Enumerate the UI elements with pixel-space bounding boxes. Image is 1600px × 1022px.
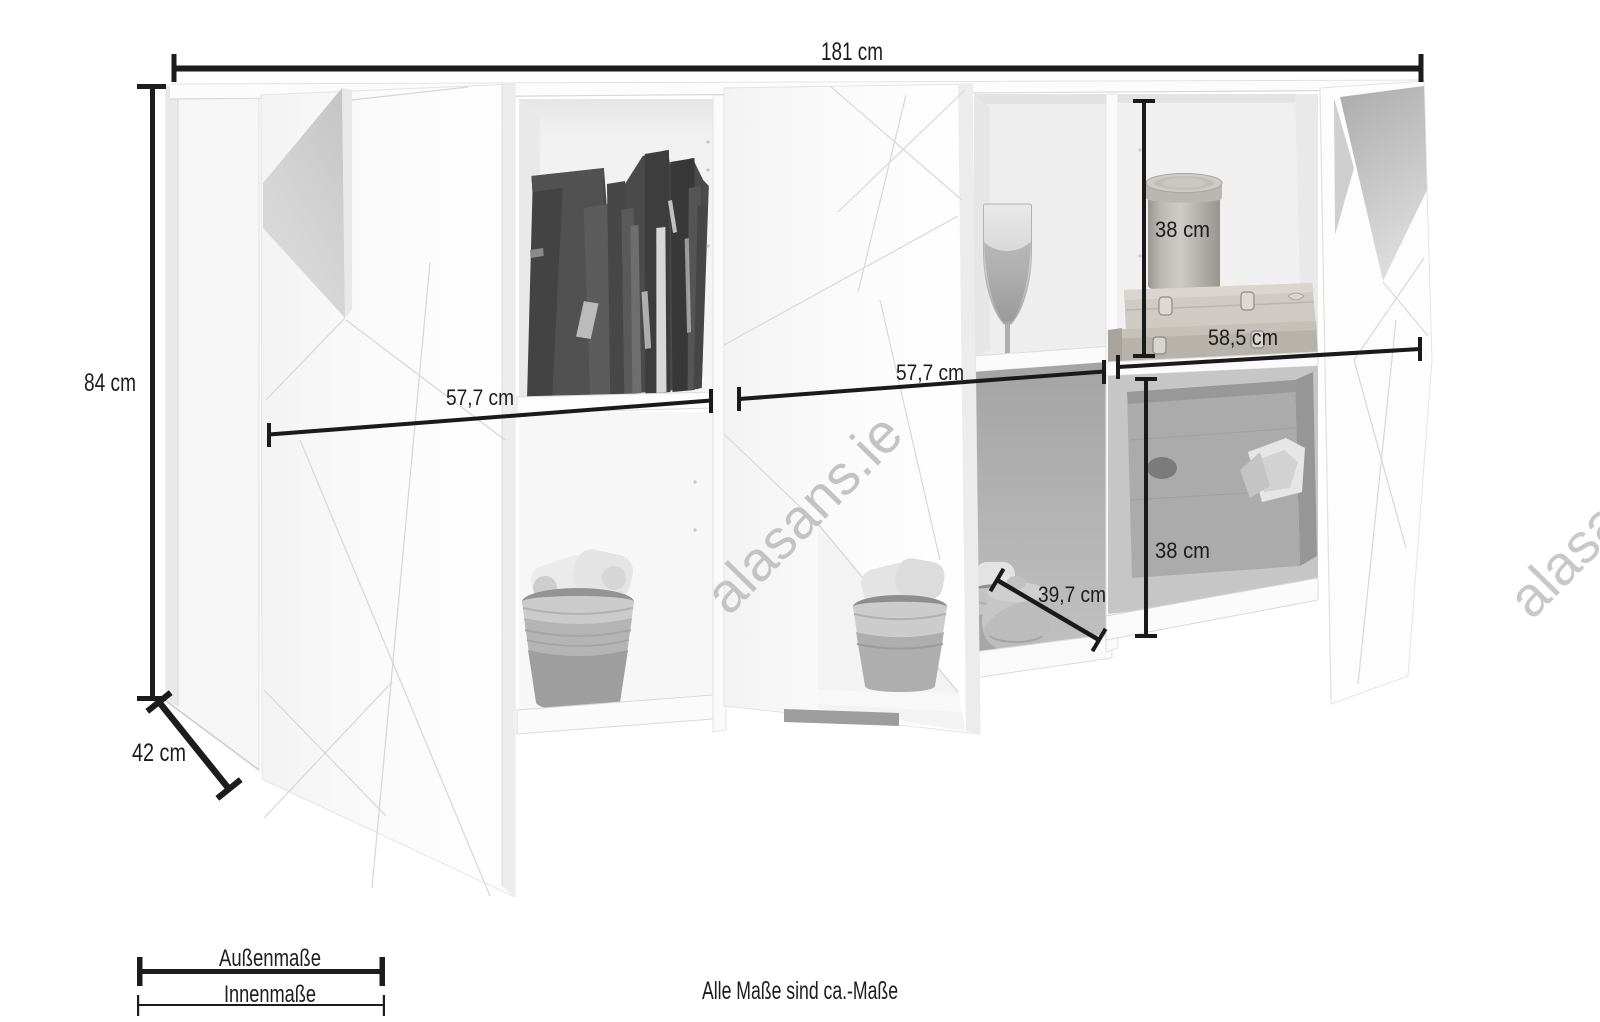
svg-text:57,7 cm: 57,7 cm xyxy=(896,360,964,385)
svg-text:Außenmaße: Außenmaße xyxy=(219,945,321,972)
svg-text:38 cm: 38 cm xyxy=(1155,538,1210,563)
svg-text:39,7 cm: 39,7 cm xyxy=(1038,582,1106,607)
svg-text:42 cm: 42 cm xyxy=(132,739,186,767)
svg-text:38 cm: 38 cm xyxy=(1155,217,1210,242)
svg-text:84 cm: 84 cm xyxy=(84,369,136,397)
svg-text:181 cm: 181 cm xyxy=(821,38,883,66)
svg-text:58,5 cm: 58,5 cm xyxy=(1208,325,1278,350)
svg-text:Innenmaße: Innenmaße xyxy=(224,981,316,1008)
svg-text:57,7 cm: 57,7 cm xyxy=(446,385,514,410)
svg-text:Alle Maße sind ca.-Maße: Alle Maße sind ca.-Maße xyxy=(702,977,898,1005)
